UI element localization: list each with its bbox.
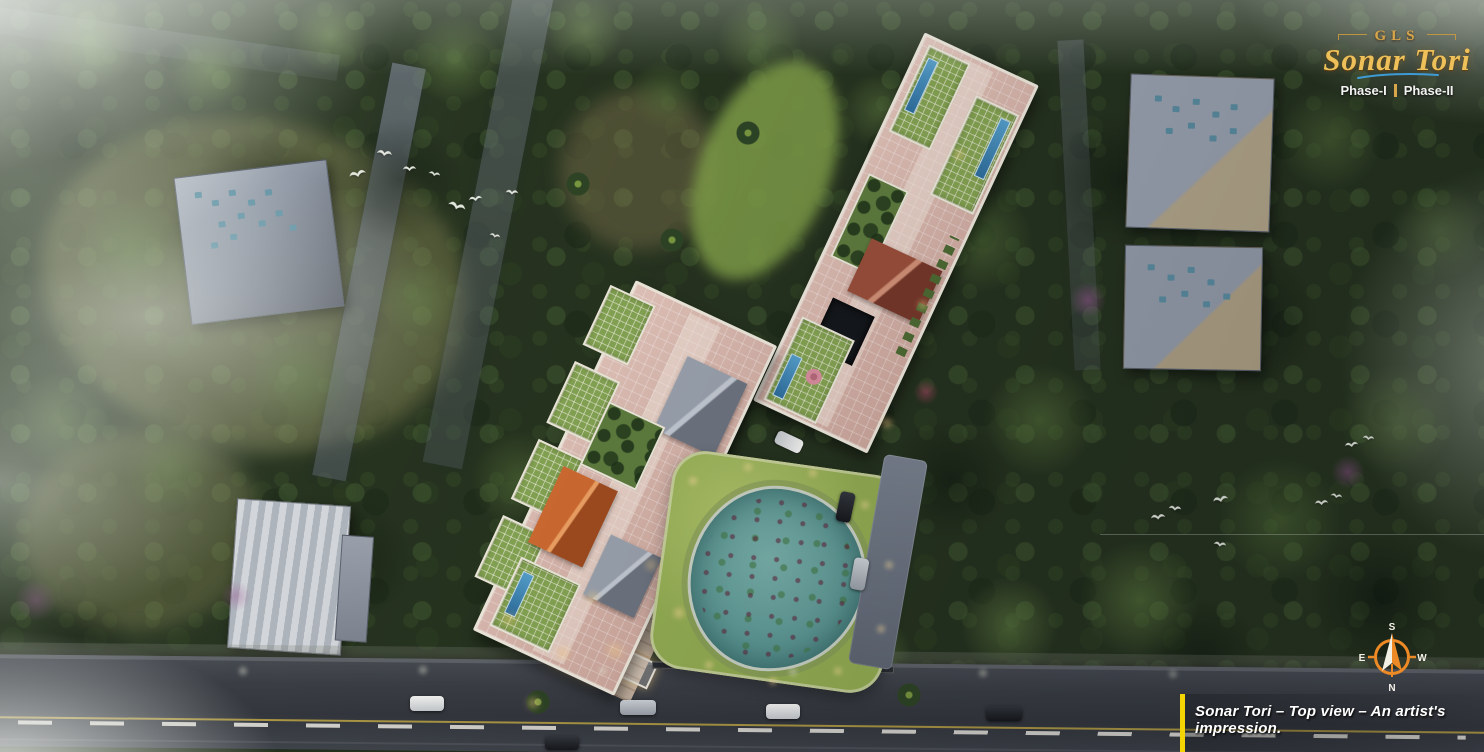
project-logo: GLS Sonar Tori Phase-I Phase-II (1318, 28, 1476, 98)
palm-tree (735, 120, 761, 146)
palm-tree (524, 688, 552, 716)
compass-label-bottom: N (1388, 683, 1395, 694)
bird-icon (402, 164, 417, 174)
phase-divider (1394, 84, 1397, 97)
compass-label-top: S (1389, 622, 1396, 633)
utility-wire (1100, 534, 1484, 535)
compass-label-left: E (1359, 653, 1366, 664)
palm-tree (660, 228, 684, 252)
image-caption: Sonar Tori – Top view – An artist's impr… (1180, 694, 1484, 752)
bird-icon (1168, 503, 1183, 513)
terrace-pod (583, 285, 656, 366)
bird-icon (1212, 539, 1227, 549)
compass-label-right: W (1417, 653, 1427, 664)
bird-icon (347, 166, 368, 182)
tower-phase2-wing (753, 32, 1039, 453)
bird-icon (1211, 492, 1230, 505)
bird-icon (427, 169, 441, 179)
car-on-road (545, 736, 579, 750)
existing-building-northwest (174, 159, 345, 325)
aerial-site-render: GLS Sonar Tori Phase-I Phase-II S N E W … (0, 0, 1484, 752)
meadow-tan-patch (560, 90, 720, 250)
rooftop-ac-units (1131, 75, 1138, 81)
palm-tree (896, 682, 922, 708)
rooftop-ac-units (1126, 246, 1133, 252)
car-on-road (620, 700, 656, 715)
terrace-pool (772, 353, 802, 400)
phase-2-label: Phase-II (1404, 83, 1454, 98)
landscape-lighting (0, 0, 6, 6)
internal-road-3 (1057, 40, 1100, 371)
terrace-pool (974, 118, 1011, 181)
existing-building-northeast (1125, 74, 1274, 233)
street-lights (0, 0, 6, 6)
car-on-road (410, 696, 444, 711)
bird-icon (1343, 439, 1359, 450)
parked-car (773, 430, 804, 455)
car-on-road (766, 704, 800, 719)
logo-project-name: Sonar Tori (1318, 45, 1476, 75)
bird-icon (375, 147, 393, 159)
bird-icon (1362, 433, 1376, 442)
building-annex (335, 535, 374, 643)
rooftop-ac-units (175, 178, 183, 185)
internal-road-4 (0, 5, 340, 81)
logo-rule-left (1338, 34, 1367, 40)
logo-phase-row: Phase-I Phase-II (1318, 83, 1476, 98)
bird-icon (1329, 491, 1343, 501)
logo-rule-right (1427, 34, 1456, 40)
bird-icon (1150, 511, 1167, 522)
bird-icon (446, 197, 469, 215)
existing-building-southwest (227, 498, 351, 656)
existing-building-east (1123, 245, 1263, 371)
terrace-pool (904, 57, 938, 114)
bird-icon (505, 188, 520, 197)
compass-rose-icon: S N E W (1354, 620, 1430, 696)
phase-1-label: Phase-I (1340, 83, 1386, 98)
car-on-road (986, 706, 1022, 721)
bird-icon (1314, 497, 1330, 507)
spa-deck (803, 366, 824, 387)
roof-shading (175, 160, 344, 323)
palm-tree (566, 172, 590, 196)
